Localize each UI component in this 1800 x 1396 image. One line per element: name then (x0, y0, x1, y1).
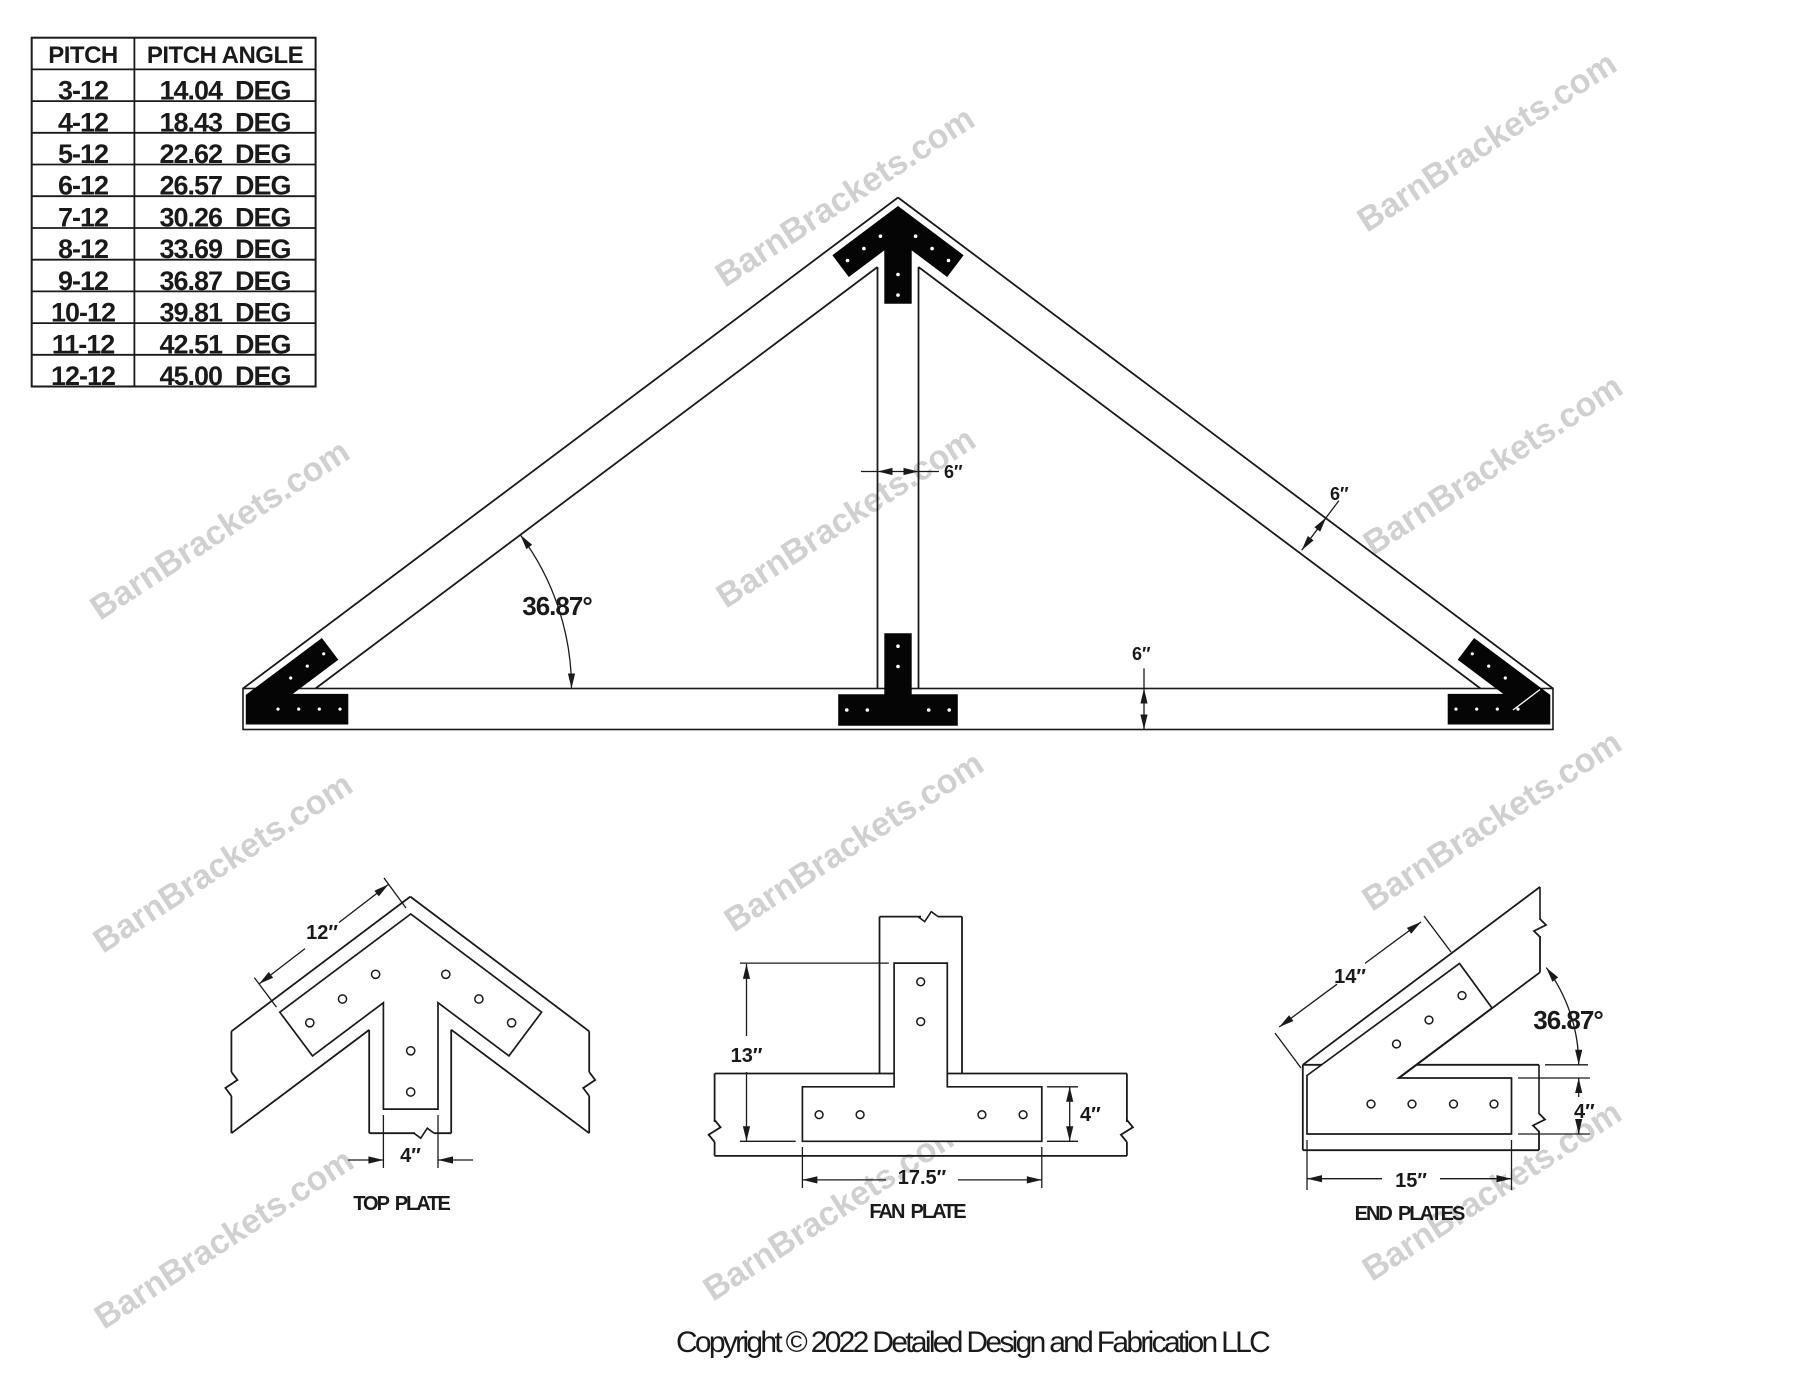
svg-text:33.69 DEG: 33.69 DEG (159, 234, 290, 264)
svg-text:FAN PLATE: FAN PLATE (869, 1201, 966, 1223)
svg-text:PITCH: PITCH (48, 42, 118, 69)
svg-text:42.51 DEG: 42.51 DEG (159, 329, 290, 359)
svg-text:3-12: 3-12 (58, 76, 108, 106)
svg-text:30.26 DEG: 30.26 DEG (159, 203, 290, 233)
svg-text:12-12: 12-12 (51, 361, 115, 391)
svg-text:6″: 6″ (1132, 644, 1151, 664)
svg-text:4″: 4″ (400, 1145, 421, 1167)
svg-text:45.00 DEG: 45.00 DEG (159, 361, 290, 391)
svg-text:36.87°: 36.87° (522, 591, 592, 621)
svg-text:39.81 DEG: 39.81 DEG (159, 298, 290, 328)
svg-text:6″: 6″ (944, 462, 963, 482)
svg-text:26.57 DEG: 26.57 DEG (159, 171, 290, 201)
svg-text:4-12: 4-12 (58, 107, 108, 137)
svg-text:TOP PLATE: TOP PLATE (353, 1193, 450, 1215)
svg-text:13″: 13″ (731, 1045, 763, 1067)
svg-text:36.87 DEG: 36.87 DEG (159, 266, 290, 296)
svg-text:6″: 6″ (1330, 484, 1349, 504)
svg-text:11-12: 11-12 (52, 329, 115, 359)
svg-text:14″: 14″ (1334, 966, 1366, 988)
svg-text:10-12: 10-12 (51, 298, 115, 328)
svg-text:9-12: 9-12 (58, 266, 108, 296)
svg-text:8-12: 8-12 (58, 234, 108, 264)
svg-text:7-12: 7-12 (58, 203, 108, 233)
svg-text:12″: 12″ (306, 922, 338, 944)
svg-text:14.04 DEG: 14.04 DEG (159, 76, 290, 106)
svg-text:15″: 15″ (1395, 1170, 1427, 1192)
svg-text:6-12: 6-12 (58, 171, 108, 201)
svg-text:PITCH ANGLE: PITCH ANGLE (147, 42, 304, 69)
svg-text:36.87°: 36.87° (1533, 1005, 1603, 1035)
svg-text:END PLATES: END PLATES (1355, 1203, 1465, 1225)
svg-text:5-12: 5-12 (58, 139, 108, 169)
svg-text:22.62 DEG: 22.62 DEG (159, 139, 290, 169)
svg-text:4″: 4″ (1080, 1104, 1101, 1126)
svg-text:4″: 4″ (1574, 1101, 1595, 1123)
svg-text:18.43 DEG: 18.43 DEG (159, 107, 290, 137)
svg-text:17.5″: 17.5″ (898, 1167, 947, 1189)
svg-text:Copyright © 2022 Detailed Desi: Copyright © 2022 Detailed Design and Fab… (676, 1326, 1270, 1359)
